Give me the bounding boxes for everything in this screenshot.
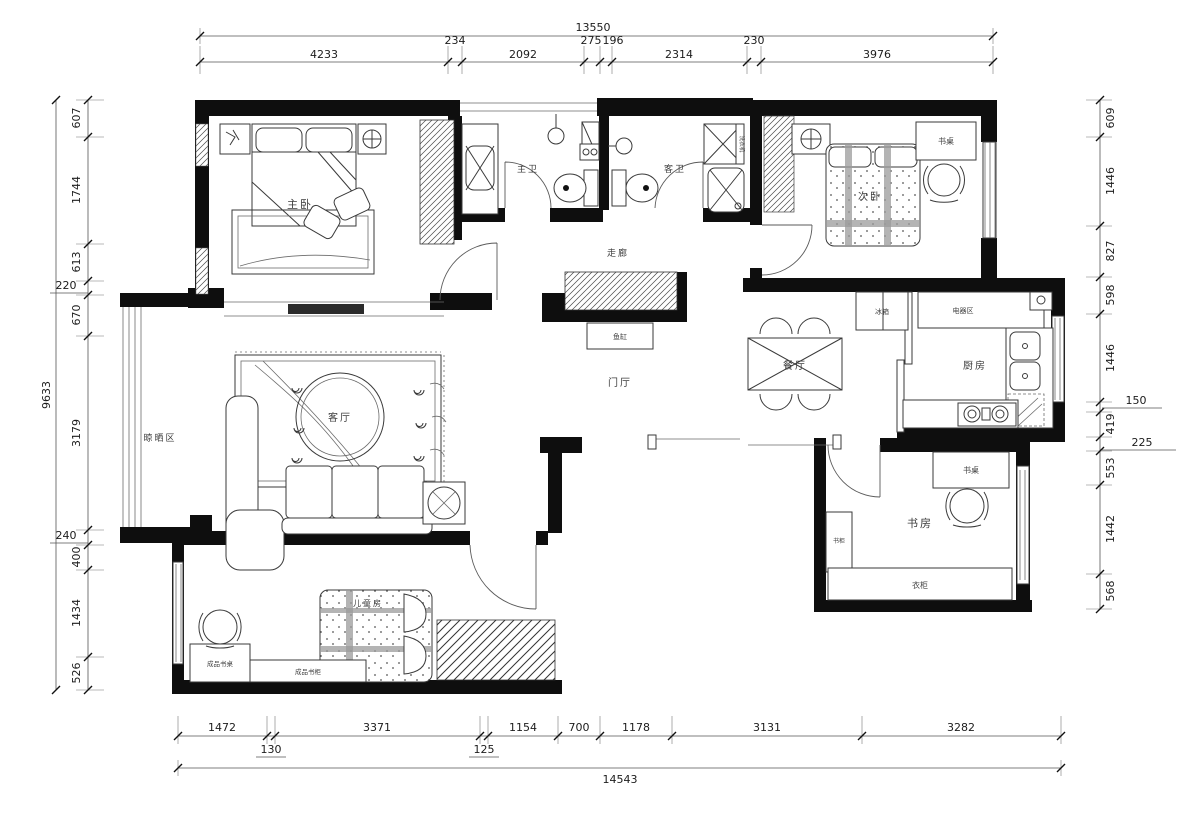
dim-label: 827	[1104, 241, 1117, 262]
dim-label: 419	[1104, 414, 1117, 435]
second-bedroom: 书桌	[792, 122, 976, 246]
kids-desk-label: 成品书桌	[207, 659, 234, 668]
chair	[203, 610, 237, 644]
dim-label: 2092	[509, 48, 537, 61]
desk-label: 书桌	[938, 136, 954, 146]
dim-label: 609	[1104, 108, 1117, 129]
dim-label: 400	[70, 547, 83, 568]
dim-label: 1744	[70, 176, 83, 204]
sofa-seat	[286, 466, 332, 518]
dim-label: 3282	[947, 721, 975, 734]
dim-label: 230	[744, 34, 765, 47]
sofa-seat	[332, 466, 378, 518]
floor-plan-page: 13550 4233 234 2092 275 196 2314 230 397…	[0, 0, 1200, 820]
dim-label: 1472	[208, 721, 236, 734]
study-wardrobe-label: 衣柜	[912, 580, 928, 590]
label-kids-room: 儿童房	[353, 598, 383, 608]
dim-label: 1434	[70, 599, 83, 627]
dim-label: 598	[1104, 285, 1117, 306]
dimension-chain-bottom: 1472 130 3371 125 1154 700 1178 3131 328…	[174, 716, 1065, 786]
door-master-bedroom	[440, 243, 497, 300]
dim-label-bottom-total: 14543	[603, 773, 638, 786]
master-bathroom	[462, 114, 599, 214]
dim-label: 1442	[1104, 515, 1117, 543]
dim-label: 130	[261, 743, 282, 756]
floor-plan-canvas: 13550 4233 234 2092 275 196 2314 230 397…	[0, 0, 1200, 820]
master-bedroom	[220, 120, 454, 274]
label-kitchen: 厨房	[963, 359, 987, 372]
entry-doormat	[437, 620, 555, 680]
toilet	[554, 174, 586, 202]
sofa-seat	[378, 466, 424, 518]
dim-label: 568	[1104, 581, 1117, 602]
pillow	[256, 128, 302, 152]
curtain-hatch	[196, 248, 208, 294]
toilet-tank	[612, 170, 626, 206]
flue-duct-hatch	[764, 116, 794, 212]
appliance-counter	[918, 292, 1044, 328]
chair	[798, 394, 830, 410]
shoe-cabinet	[565, 272, 677, 310]
chair	[760, 394, 792, 410]
label-second-bedroom: 次卧	[858, 190, 882, 203]
dim-label: 1446	[1104, 344, 1117, 372]
fridge-label: 冰箱	[875, 307, 889, 316]
kids-bookcase-label: 成品书柜	[295, 667, 322, 676]
sofa-front	[282, 518, 432, 534]
dim-label: 700	[569, 721, 590, 734]
chair	[760, 318, 792, 334]
label-drying-area: 晾晒区	[143, 432, 176, 444]
pillow	[875, 147, 917, 167]
dim-label: 3371	[363, 721, 391, 734]
kitchen: 冰箱 电器区	[856, 292, 1053, 428]
dim-label: 3976	[863, 48, 891, 61]
dim-label: 670	[70, 305, 83, 326]
label-study: 书房	[907, 517, 933, 530]
dim-label: 607	[70, 108, 83, 129]
chair	[928, 164, 960, 196]
toilet	[626, 174, 658, 202]
label-master-bedroom: 主卧	[287, 198, 313, 211]
dim-label: 553	[1104, 458, 1117, 479]
door-study	[828, 445, 880, 497]
sink-basin	[1010, 362, 1040, 390]
dimension-chain-right: 609 1446 827 598 1446 150 419 225 553 14…	[1086, 96, 1176, 613]
dim-label: 150	[1126, 394, 1147, 407]
faucet-icon	[616, 138, 632, 154]
door-kids-room	[470, 545, 536, 609]
dim-label: 4233	[310, 48, 338, 61]
dim-label: 1446	[1104, 167, 1117, 195]
label-living: 客厅	[328, 411, 352, 424]
appliance-zone-label: 电器区	[953, 306, 974, 315]
dim-label: 526	[70, 663, 83, 684]
dim-label: 234	[445, 34, 466, 47]
dim-label-top-total: 13550	[576, 21, 611, 34]
dim-label: 1154	[509, 721, 537, 734]
dim-label: 275	[581, 34, 602, 47]
chair	[950, 489, 984, 523]
sink-basin	[1010, 332, 1040, 360]
washer-label: 洗衣机	[738, 136, 746, 153]
dim-label: 240	[56, 529, 77, 542]
wardrobe-master	[420, 120, 454, 244]
dim-label: 2314	[665, 48, 693, 61]
label-dining: 餐厅	[783, 359, 807, 372]
study-desk-label: 书桌	[963, 465, 979, 475]
dim-label-left-total: 9633	[40, 381, 53, 409]
door-second-bedroom	[762, 225, 812, 275]
label-entry-hall: 门厅	[608, 376, 632, 389]
tv	[288, 304, 364, 314]
dimension-chain-left: 9633 607 1744 613 220 670 3179 240 400 1…	[40, 96, 104, 694]
nightstand	[220, 124, 250, 154]
dim-label: 3131	[753, 721, 781, 734]
dim-label: 1178	[622, 721, 650, 734]
dim-label: 125	[474, 743, 495, 756]
dim-label: 613	[70, 252, 83, 273]
label-corridor: 走廊	[607, 247, 629, 259]
fish-tank-label: 鱼缸	[613, 332, 627, 341]
label-master-bath: 主卫	[517, 163, 539, 175]
dim-label: 3179	[70, 419, 83, 447]
dim-label: 225	[1132, 436, 1153, 449]
dim-label: 220	[56, 279, 77, 292]
dimension-chain-top: 13550 4233 234 2092 275 196 2314 230 397…	[196, 21, 997, 74]
study-bookcase-label: 书柜	[833, 537, 845, 545]
sofa-corner	[226, 510, 284, 570]
ceiling-lamp-icon	[548, 128, 564, 144]
dim-label: 196	[603, 34, 624, 47]
curtain-hatch	[196, 124, 208, 166]
label-guest-bath: 客卫	[664, 163, 686, 175]
pillow	[306, 128, 352, 152]
chair	[798, 318, 830, 334]
